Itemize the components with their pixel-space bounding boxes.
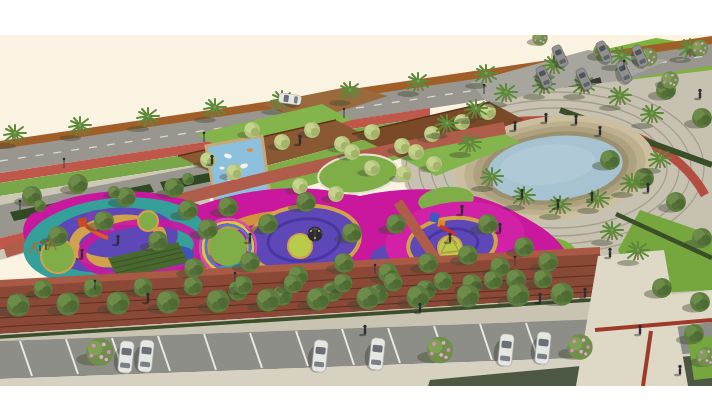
park-rendering-image (0, 0, 712, 416)
climbing-dome (308, 227, 323, 242)
render-canvas (0, 0, 712, 416)
lawn-circle-center (288, 234, 312, 258)
render-area (0, 30, 712, 386)
lawn-circle (138, 211, 158, 231)
